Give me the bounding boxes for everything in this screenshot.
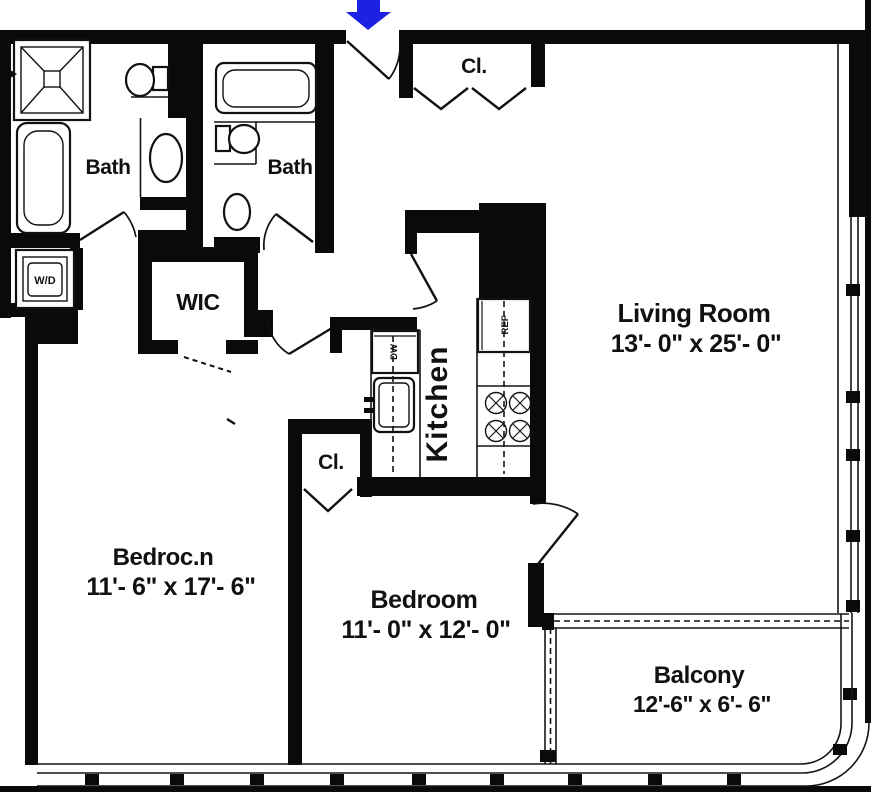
stray-mark [227,419,235,424]
bedroom-2-name: Bedroom [371,586,478,614]
bathroom-2-fixtures [214,63,316,230]
entry-arrow-icon [346,0,391,30]
dishwasher-label: DW [389,344,400,360]
toilet-2-bowl [229,125,259,153]
entry-door-leaf [347,41,389,79]
kitchen-door-leaf [411,254,437,301]
floor-plan: Bath Bath W/D WIC Cl. Cl. Kitchen DW REF… [0,0,871,792]
wic-label: WIC [176,289,220,315]
bedroom-closet-bifold [304,489,352,511]
bath-1-label: Bath [85,156,130,179]
sink-2 [224,194,250,230]
refrigerator-label: REF [500,315,511,334]
bedroom-1-door-leaf [289,328,332,354]
balcony-dimensions: 12'-6" x 6'- 6" [633,691,771,717]
toilet-2-tank [216,126,230,151]
faucet [364,397,374,402]
floor-plan-drawing: Bath Bath W/D WIC Cl. Cl. Kitchen DW REF… [0,0,871,792]
entry-closet-bifold-left [414,88,468,109]
washer-dryer-label: W/D [34,275,55,287]
toilet-1-bowl [126,64,154,96]
balcony-name: Balcony [654,662,746,689]
entry-closet-label: Cl. [461,55,487,78]
sink-1 [150,134,182,182]
entry-closet-bifold-right [472,88,526,109]
bath-2-door-leaf [276,214,313,242]
living-room-dimensions: 13'- 0" x 25'- 0" [611,330,782,358]
toilet-1-tank [153,67,168,90]
bath-1-door-leaf [80,212,124,240]
bedroom-1-dimensions: 11'- 6" x 17'- 6" [86,573,255,601]
stove-burners [486,393,531,442]
bedroom-2-door-leaf [538,514,578,564]
bedroom-1-name: Bedroc.n [113,544,214,571]
kitchen-label: Kitchen [421,345,454,462]
bath-2-label: Bath [267,156,312,179]
living-room-name: Living Room [617,298,770,328]
bedroom-2-dimensions: 11'- 0" x 12'- 0" [341,616,510,644]
wic-door [184,357,231,372]
bedroom-closet-label: Cl. [318,451,344,474]
